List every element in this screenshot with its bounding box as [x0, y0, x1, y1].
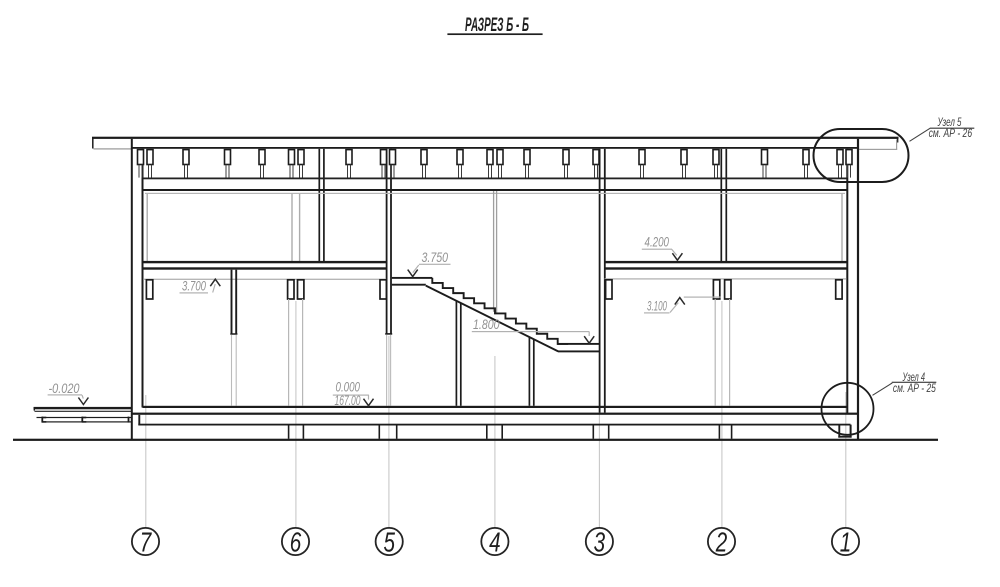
svg-text:3.700: 3.700 [182, 278, 206, 294]
svg-text:2: 2 [715, 527, 728, 558]
svg-text:3.100: 3.100 [647, 298, 667, 314]
svg-text:1: 1 [840, 527, 852, 558]
svg-text:-0.020: -0.020 [49, 380, 80, 396]
svg-text:7: 7 [140, 527, 153, 558]
svg-text:6: 6 [290, 527, 302, 558]
svg-text:РАЗРЕЗ Б - Б: РАЗРЕЗ Б - Б [465, 15, 529, 36]
svg-text:4.200: 4.200 [645, 234, 670, 250]
svg-text:5: 5 [383, 527, 395, 558]
svg-text:3.750: 3.750 [422, 249, 449, 265]
svg-text:см. АР - 26: см. АР - 26 [929, 126, 973, 140]
svg-text:167.00: 167.00 [335, 392, 361, 408]
svg-text:см. АР - 25: см. АР - 25 [893, 381, 936, 395]
svg-text:3: 3 [594, 527, 606, 558]
svg-text:1.800: 1.800 [473, 316, 500, 332]
svg-text:4: 4 [489, 527, 501, 558]
